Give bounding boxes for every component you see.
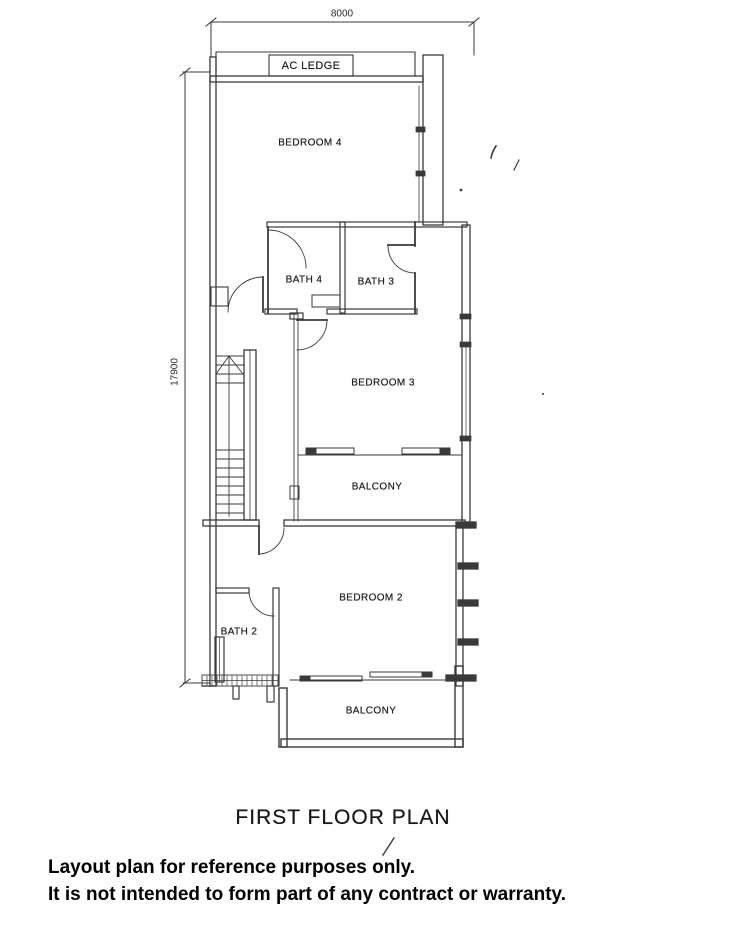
bath-block-walls bbox=[265, 222, 467, 319]
bedroom2-sliding-door bbox=[290, 672, 456, 681]
label-bath2: BATH 2 bbox=[221, 627, 258, 638]
louvre-band bbox=[202, 675, 278, 702]
label-bedroom2: BEDROOM 2 bbox=[339, 593, 403, 604]
left-dimension-label: 17900 bbox=[170, 358, 181, 386]
bedroom2-right-wall bbox=[446, 526, 478, 686]
bath4-door bbox=[268, 227, 306, 313]
bedroom2-top-wall bbox=[203, 520, 476, 528]
exterior-walls bbox=[202, 55, 470, 686]
bath3-door bbox=[388, 222, 415, 313]
disclaimer-line2: It is not intended to form part of any c… bbox=[48, 884, 566, 906]
floor-plan-page: 8000 17900 AC LEDGE BEDROOM 4 BATH 4 BAT… bbox=[0, 0, 730, 944]
hall-fixture bbox=[211, 287, 228, 306]
bath2-door bbox=[249, 591, 274, 616]
bedroom3-door bbox=[297, 320, 327, 350]
bedroom3-walls bbox=[290, 314, 299, 521]
floor-plan-drawing bbox=[0, 0, 730, 944]
disclaimer-line1: Layout plan for reference purposes only. bbox=[48, 857, 415, 879]
bedroom2-hall-door bbox=[259, 526, 284, 554]
label-bath3: BATH 3 bbox=[358, 277, 395, 288]
scan-artifacts bbox=[383, 146, 544, 855]
top-dimension-line bbox=[206, 18, 479, 57]
label-ac-ledge: AC LEDGE bbox=[282, 60, 341, 72]
label-balcony-mid: BALCONY bbox=[352, 482, 403, 493]
label-bedroom3: BEDROOM 3 bbox=[351, 378, 415, 389]
top-dimension-label: 8000 bbox=[331, 9, 353, 20]
left-dimension-line bbox=[180, 68, 210, 687]
plan-title: FIRST FLOOR PLAN bbox=[235, 806, 450, 830]
label-bedroom4: BEDROOM 4 bbox=[278, 138, 342, 149]
hall-door bbox=[228, 277, 263, 312]
label-bath4: BATH 4 bbox=[286, 275, 323, 286]
balcony-mid-sliding-door bbox=[298, 448, 462, 455]
staircase bbox=[216, 350, 256, 520]
label-balcony-low: BALCONY bbox=[346, 706, 397, 717]
